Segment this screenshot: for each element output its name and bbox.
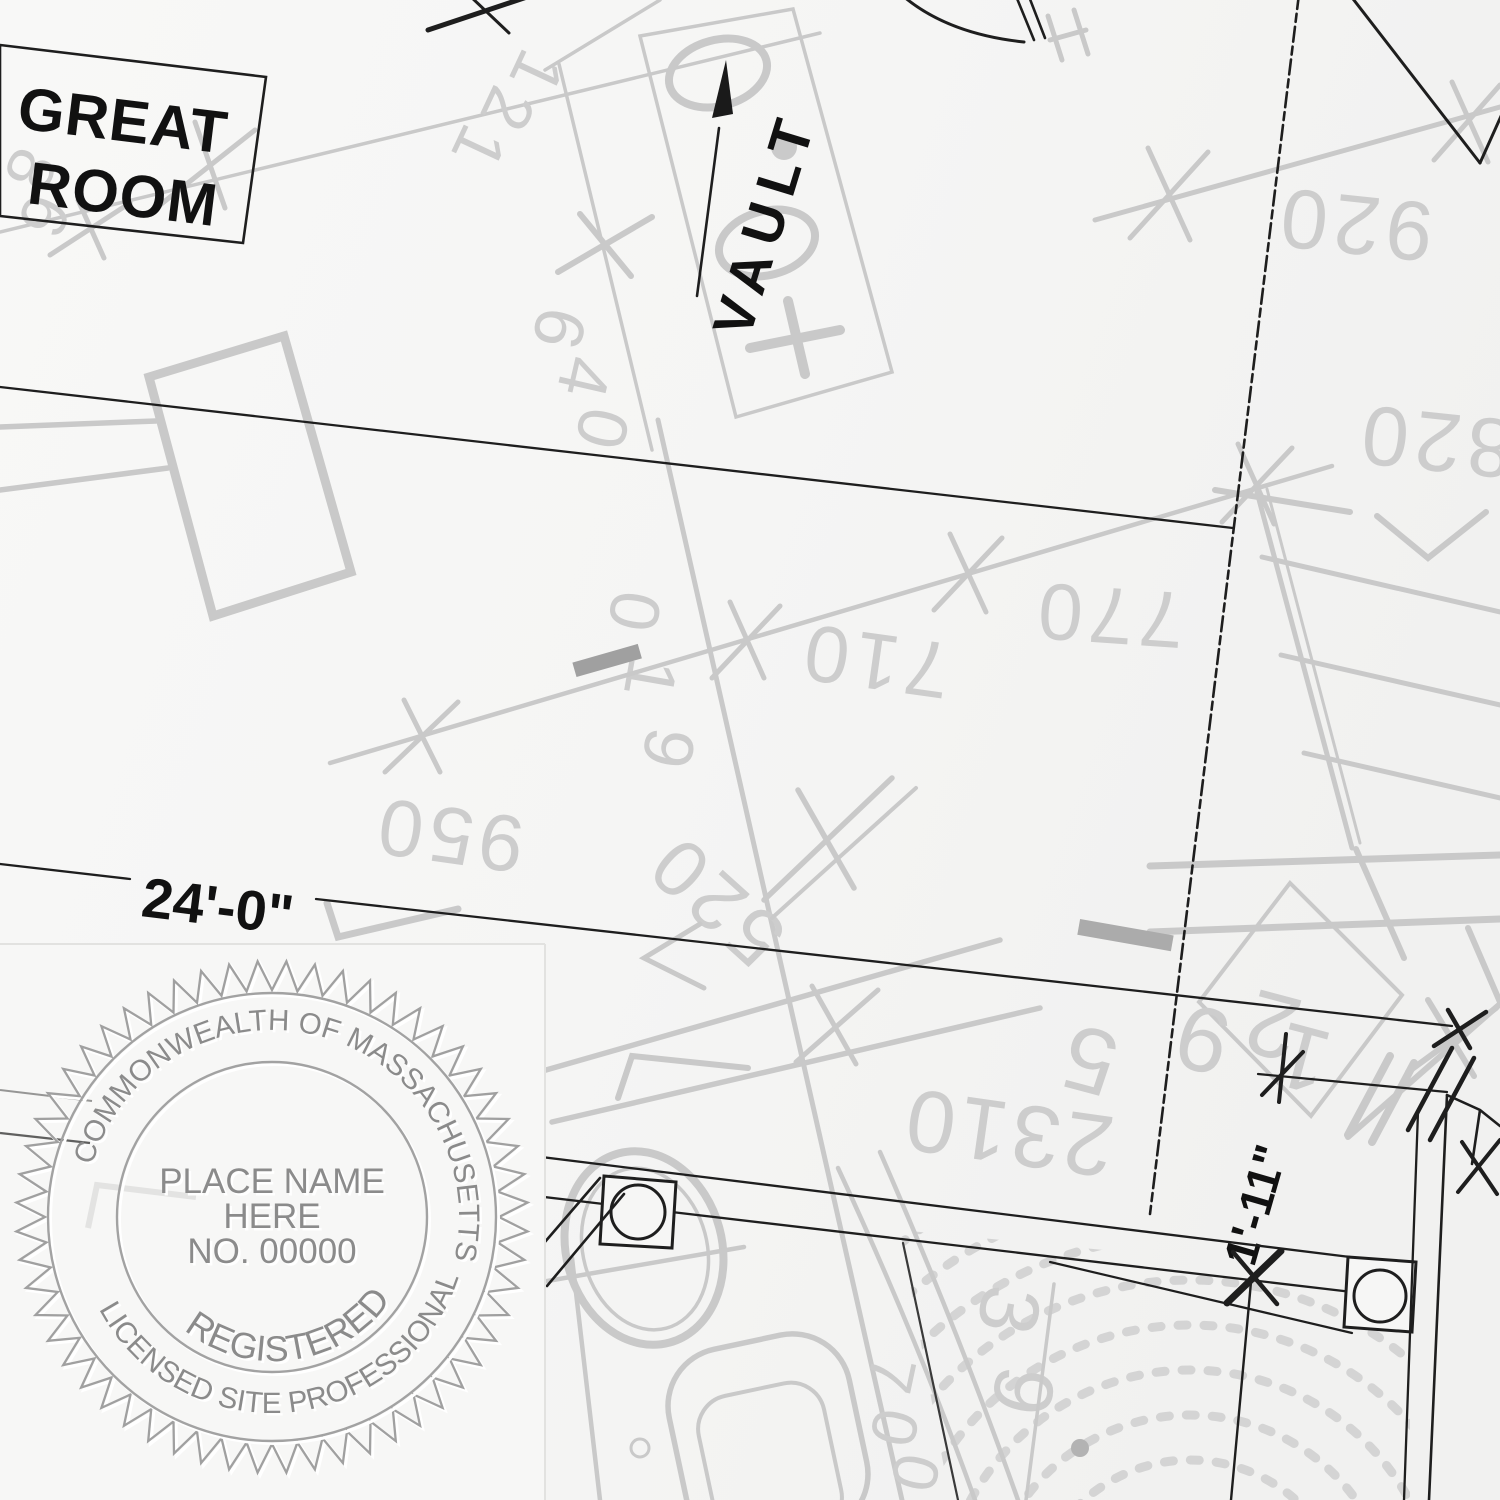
svg-text:770: 770 (1029, 566, 1186, 665)
svg-text:820: 820 (1351, 387, 1500, 497)
svg-text:HERE: HERE (223, 1197, 320, 1236)
svg-text:920: 920 (1270, 170, 1437, 280)
svg-text:NO. 00000: NO. 00000 (187, 1232, 356, 1271)
svg-text:PLACE NAME: PLACE NAME (159, 1162, 385, 1201)
